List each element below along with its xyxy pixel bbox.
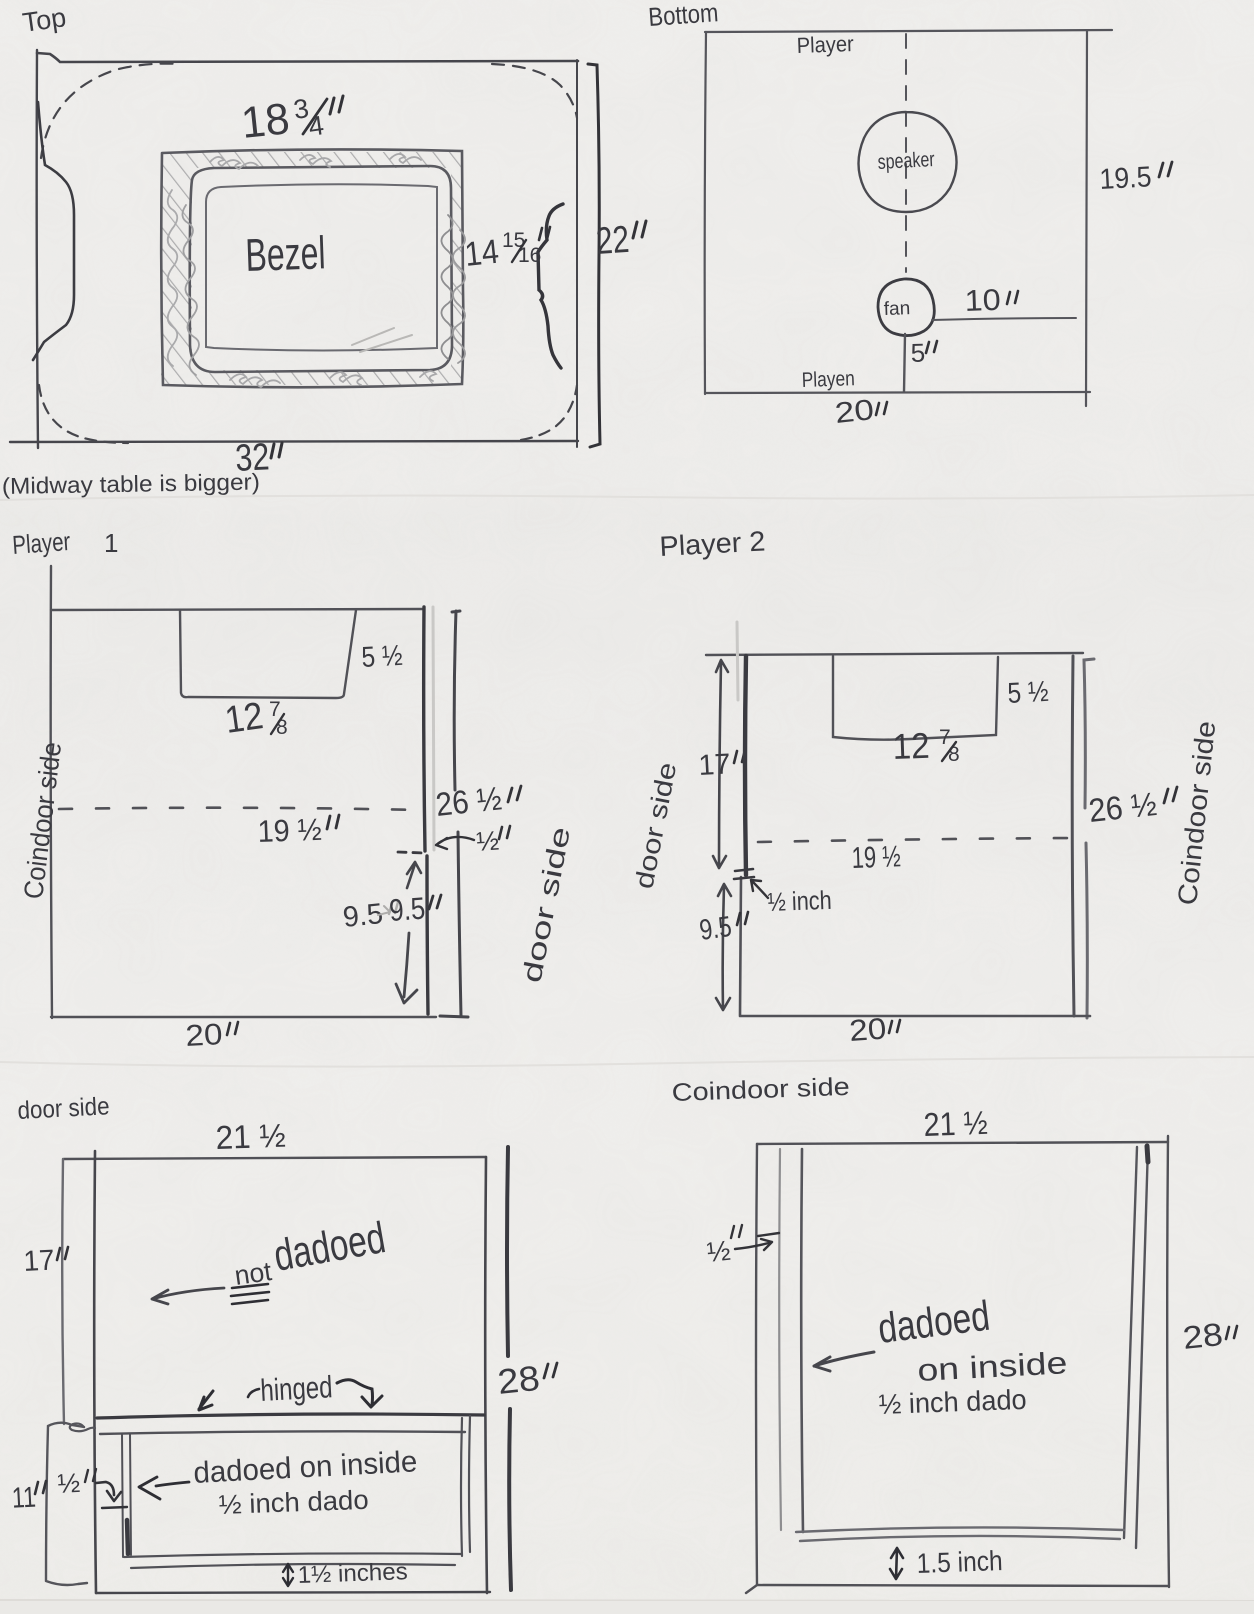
svg-text:hinged: hinged xyxy=(260,1369,334,1408)
svg-text:Player: Player xyxy=(11,526,71,560)
svg-text:½ inch: ½ inch xyxy=(767,885,832,917)
svg-text:Top: Top xyxy=(21,2,68,38)
svg-text:28: 28 xyxy=(1181,1316,1225,1356)
svg-text:12: 12 xyxy=(222,695,265,742)
svg-text:Playen: Playen xyxy=(801,367,855,392)
svg-text:21 ½: 21 ½ xyxy=(923,1104,988,1143)
svg-text:Player 2: Player 2 xyxy=(659,525,766,562)
svg-text:12: 12 xyxy=(892,725,930,767)
svg-text:½: ½ xyxy=(475,825,500,856)
svg-text:fan: fan xyxy=(883,298,910,320)
svg-text:5: 5 xyxy=(910,338,926,368)
svg-text:5 ½: 5 ½ xyxy=(1007,676,1050,710)
svg-text:½: ½ xyxy=(705,1235,731,1268)
svg-text:speaker: speaker xyxy=(877,148,935,174)
svg-text:1½ inches: 1½ inches xyxy=(297,1558,408,1589)
svg-text:20: 20 xyxy=(833,394,875,430)
svg-text:½ inch dado: ½ inch dado xyxy=(878,1384,1027,1420)
svg-text:17: 17 xyxy=(23,1244,56,1278)
svg-text:19 ½: 19 ½ xyxy=(257,812,322,849)
svg-text:Player: Player xyxy=(796,31,854,58)
svg-text:11: 11 xyxy=(11,1482,37,1515)
svg-text:17: 17 xyxy=(698,748,732,782)
svg-text:5 ½: 5 ½ xyxy=(361,640,404,674)
svg-text:28: 28 xyxy=(496,1359,542,1402)
svg-text:door side: door side xyxy=(17,1092,110,1125)
svg-text:21 ½: 21 ½ xyxy=(215,1117,286,1156)
svg-text:Bezel: Bezel xyxy=(245,226,327,281)
svg-text:18: 18 xyxy=(239,94,292,148)
svg-text:9.5: 9.5 xyxy=(388,891,426,928)
svg-text:20: 20 xyxy=(848,1012,887,1048)
svg-text:26 ½: 26 ½ xyxy=(1087,785,1158,829)
svg-text:26 ½: 26 ½ xyxy=(434,779,504,823)
svg-text:Bottom: Bottom xyxy=(647,0,719,32)
svg-text:14: 14 xyxy=(463,233,501,274)
svg-text:22: 22 xyxy=(595,219,631,263)
svg-text:(Midway table is bigger): (Midway table is bigger) xyxy=(2,469,260,499)
svg-text:1.5 inch: 1.5 inch xyxy=(916,1545,1003,1579)
svg-text:½ inch dado: ½ inch dado xyxy=(218,1485,369,1520)
svg-text:20: 20 xyxy=(185,1018,224,1053)
svg-text:9.5: 9.5 xyxy=(698,911,734,947)
svg-text:19 ½: 19 ½ xyxy=(851,840,901,875)
svg-text:19.5: 19.5 xyxy=(1099,161,1153,196)
svg-text:½: ½ xyxy=(57,1468,81,1499)
svg-text:10: 10 xyxy=(964,284,1001,318)
svg-text:1: 1 xyxy=(104,528,118,558)
